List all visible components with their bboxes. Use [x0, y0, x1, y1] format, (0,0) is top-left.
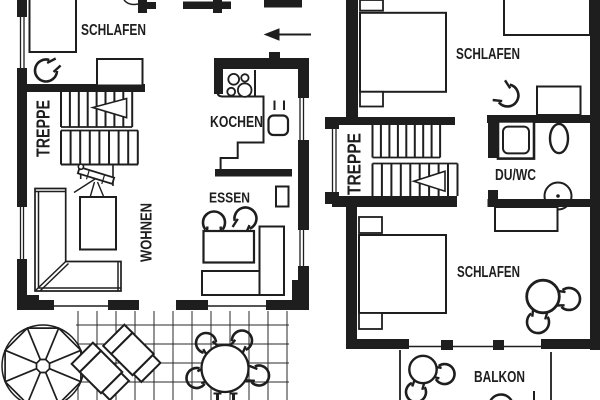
- svg-text:BALKON: BALKON: [474, 369, 525, 386]
- svg-text:TREPPE: TREPPE: [345, 133, 365, 195]
- svg-text:SCHLAFEN: SCHLAFEN: [456, 46, 520, 63]
- svg-text:SCHLAFEN: SCHLAFEN: [81, 22, 146, 39]
- svg-text:KOCHEN: KOCHEN: [210, 114, 263, 131]
- svg-text:SCHLAFEN: SCHLAFEN: [457, 264, 520, 281]
- svg-text:ESSEN: ESSEN: [209, 191, 250, 207]
- svg-text:WOHNEN: WOHNEN: [139, 203, 156, 262]
- svg-text:DU/WC: DU/WC: [495, 167, 536, 184]
- svg-text:TREPPE: TREPPE: [34, 100, 54, 157]
